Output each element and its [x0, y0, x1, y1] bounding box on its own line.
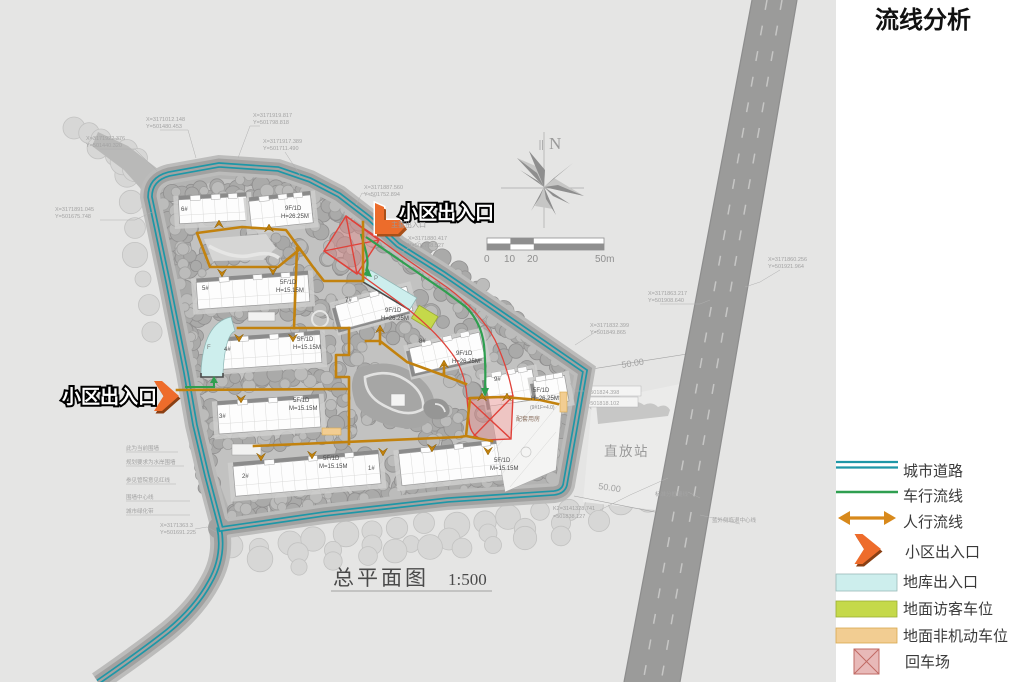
svg-text:小区出入口: 小区出入口 [399, 201, 494, 224]
svg-text:10: 10 [504, 254, 516, 265]
svg-text:X=3171363.3: X=3171363.3 [160, 523, 193, 529]
svg-text:=501838.127: =501838.127 [553, 514, 585, 520]
svg-text:X=3171832.399: X=3171832.399 [590, 323, 629, 329]
svg-text:5F/1D: 5F/1D [293, 398, 310, 404]
svg-text:M=15.15M: M=15.15M [289, 406, 318, 412]
svg-text:20: 20 [527, 254, 539, 265]
svg-text:X=3171917.389: X=3171917.389 [263, 139, 302, 145]
svg-text:1#: 1# [368, 466, 375, 472]
svg-text:H=15.15M: H=15.15M [293, 345, 321, 351]
svg-text:Y=501921.964: Y=501921.964 [768, 264, 804, 270]
svg-text:0: 0 [484, 254, 490, 265]
svg-text:5F/1D: 5F/1D [323, 456, 340, 462]
svg-text:地面非机动车位: 地面非机动车位 [903, 628, 1008, 645]
svg-text:Y=501849.865: Y=501849.865 [590, 330, 626, 336]
svg-text:直放站: 直放站 [604, 444, 649, 459]
svg-text:Y=501480.453: Y=501480.453 [146, 124, 182, 130]
svg-text:小区出入口: 小区出入口 [62, 385, 157, 408]
svg-text:9#: 9# [494, 377, 501, 383]
svg-text:1:500: 1:500 [448, 570, 487, 589]
svg-text:K2=3141328.741: K2=3141328.741 [553, 506, 595, 512]
svg-text:X=3171887.560: X=3171887.560 [364, 185, 403, 191]
svg-text:H=26.25M: H=26.25M [452, 359, 480, 365]
svg-text:5F/1D: 5F/1D [533, 388, 550, 394]
svg-text:H=26.25M: H=26.25M [531, 396, 559, 402]
svg-text:规划要求为水岸围墙: 规划要求为水岸围墙 [126, 458, 176, 466]
svg-text:标准分框覆线: 标准分框覆线 [655, 490, 689, 498]
svg-text:5#: 5# [202, 286, 209, 292]
svg-text:M=15.15M: M=15.15M [319, 464, 348, 470]
svg-text:人行流线: 人行流线 [903, 514, 963, 531]
svg-text:=501824.398: =501824.398 [587, 390, 619, 396]
svg-text:7#: 7# [345, 298, 352, 304]
svg-text:地面访客车位: 地面访客车位 [903, 601, 993, 618]
svg-text:X=3171863.217: X=3171863.217 [648, 291, 687, 297]
svg-text:城市道路: 城市道路 [903, 463, 963, 480]
svg-text:X=3171891.045: X=3171891.045 [55, 207, 94, 213]
svg-text:Y=501798.818: Y=501798.818 [253, 120, 289, 126]
svg-text:N: N [549, 134, 561, 153]
svg-text:X=3171880.417: X=3171880.417 [408, 236, 447, 242]
svg-text:主要出入口: 主要出入口 [391, 220, 426, 229]
svg-text:城市绿化带: 城市绿化带 [126, 507, 154, 515]
svg-text:围墙中心线: 围墙中心线 [126, 493, 154, 501]
svg-text:5F/1D: 5F/1D [280, 280, 297, 286]
svg-text:总平面图: 总平面图 [333, 566, 429, 590]
svg-text:Y=501675.748: Y=501675.748 [55, 214, 91, 220]
svg-text:9F/1D: 9F/1D [456, 351, 473, 357]
svg-text:流线分析: 流线分析 [875, 7, 971, 34]
svg-text:9F/1D: 9F/1D [285, 206, 302, 212]
svg-text:H=26.25M: H=26.25M [381, 316, 409, 322]
svg-text:5F/1D: 5F/1D [494, 458, 511, 464]
svg-text:3#: 3# [219, 414, 226, 420]
svg-text:小区出入口: 小区出入口 [905, 544, 980, 561]
svg-text:地库出入口: 地库出入口 [903, 574, 978, 591]
svg-text:参见管院意见红线: 参见管院意见红线 [126, 476, 171, 484]
svg-text:X=3171012.148: X=3171012.148 [146, 117, 185, 123]
svg-text:9F/1D: 9F/1D [385, 308, 402, 314]
svg-text:Y=501691.225: Y=501691.225 [160, 530, 196, 536]
svg-text:Y=501711.490: Y=501711.490 [263, 146, 299, 152]
svg-text:4#: 4# [224, 347, 231, 353]
svg-text:X=3171919.817: X=3171919.817 [253, 113, 292, 119]
svg-text:2#: 2# [242, 474, 249, 480]
svg-text:H=15.15M: H=15.15M [276, 288, 304, 294]
svg-text:=501818.102: =501818.102 [587, 401, 619, 407]
svg-text:X=3171860.256: X=3171860.256 [768, 257, 807, 263]
svg-text:X=3171922.376: X=3171922.376 [86, 136, 125, 142]
svg-text:6#: 6# [181, 207, 188, 213]
svg-text:此为当前围墙: 此为当前围墙 [126, 444, 160, 452]
svg-text:M=15.15M: M=15.15M [490, 466, 519, 472]
svg-text:H=26.25M: H=26.25M [281, 214, 309, 220]
svg-text:F: F [207, 345, 211, 351]
svg-text:Y=501440.320: Y=501440.320 [86, 143, 122, 149]
svg-text:Y=501908.640: Y=501908.640 [648, 298, 684, 304]
svg-text:车行流线: 车行流线 [903, 488, 963, 505]
svg-text:8#: 8# [419, 339, 426, 345]
svg-text:50m: 50m [595, 254, 614, 265]
svg-text:Y=501758.527: Y=501758.527 [408, 243, 444, 249]
svg-text:配套用房: 配套用房 [516, 415, 540, 423]
svg-text:回车场: 回车场 [905, 654, 950, 671]
svg-text:(9#1F=4.0): (9#1F=4.0) [530, 405, 555, 411]
svg-text:P: P [374, 276, 378, 282]
svg-text:5F/1D: 5F/1D [297, 337, 314, 343]
